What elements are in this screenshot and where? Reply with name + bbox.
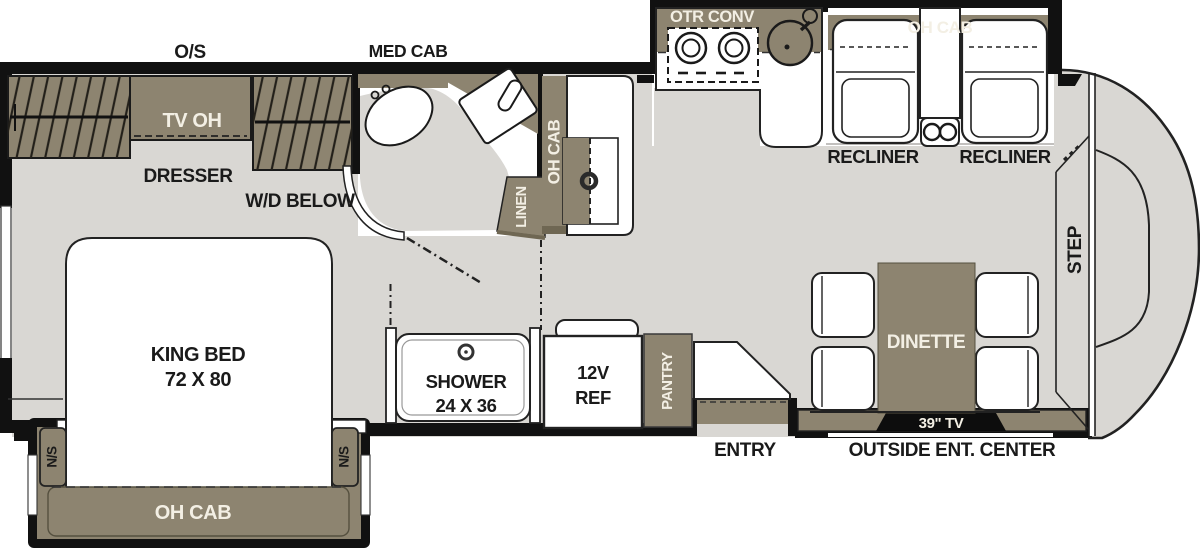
- recliner-left-chair: [833, 20, 918, 143]
- kitchen-sink-drain: [785, 45, 790, 50]
- wall-bath-left: [352, 74, 360, 174]
- entry-threshold: [697, 400, 788, 424]
- label-recliner-left: RECLINER: [827, 146, 918, 167]
- label-ns-right: N/S: [337, 446, 352, 468]
- label-tv-oh: TV OH: [162, 110, 221, 132]
- counter-inset-tan: [563, 138, 590, 224]
- shower-drain-dot: [464, 350, 468, 354]
- label-bed-oh-cab: OH CAB: [155, 502, 232, 524]
- kitchen-faucet: [803, 9, 817, 23]
- kitchen-floor-patch: [654, 88, 760, 146]
- label-fridge-1: 12V: [577, 362, 610, 383]
- shower-wall-right: [530, 328, 540, 423]
- compartment-door-gap: [828, 433, 1053, 437]
- rv-floorplan-svg: O/S MED CAB TV OH DRESSER W/D BELOW KING…: [0, 0, 1200, 551]
- label-step: STEP: [1065, 225, 1086, 274]
- slide-seal-left: [637, 75, 654, 83]
- label-pantry: PANTRY: [659, 352, 676, 410]
- label-linen: LINEN: [514, 186, 530, 228]
- recliner-right-chair: [962, 20, 1047, 143]
- wall-slide-right: [1048, 0, 1062, 74]
- label-fridge-2: REF: [575, 387, 611, 408]
- wall-slide-top: [650, 0, 1062, 8]
- wall-top: [2, 62, 658, 74]
- label-shower-1: SHOWER: [426, 371, 507, 392]
- label-bath-oh-cab: OH CAB: [544, 120, 563, 185]
- label-living-oh-cab: OH CAB: [908, 18, 973, 37]
- label-med-cab: MED CAB: [369, 41, 448, 61]
- step-wall-fill: [1090, 73, 1095, 436]
- vanity-band: [358, 74, 448, 88]
- label-otr-conv: OTR CONV: [670, 8, 754, 26]
- label-entry: ENTRY: [714, 440, 776, 461]
- rv-floorplan: O/S MED CAB TV OH DRESSER W/D BELOW KING…: [0, 0, 1200, 551]
- label-king-bed-2: 72 X 80: [165, 369, 231, 391]
- label-ns-left: N/S: [45, 446, 60, 468]
- label-wd-below: W/D BELOW: [245, 191, 355, 212]
- bed-slide-window-left: [28, 455, 37, 515]
- label-recliner-right: RECLINER: [959, 146, 1050, 167]
- window-left: [1, 206, 11, 360]
- shower-wall-left: [386, 328, 396, 423]
- label-shower-2: 24 X 36: [436, 395, 497, 416]
- label-39-tv: 39" TV: [919, 415, 964, 432]
- label-dresser: DRESSER: [143, 166, 233, 187]
- bed-slide-window-right: [361, 455, 370, 515]
- label-dinette: DINETTE: [887, 332, 965, 353]
- label-os: O/S: [174, 42, 206, 63]
- label-outside-ent: OUTSIDE ENT. CENTER: [849, 440, 1056, 461]
- label-king-bed-1: KING BED: [151, 344, 246, 366]
